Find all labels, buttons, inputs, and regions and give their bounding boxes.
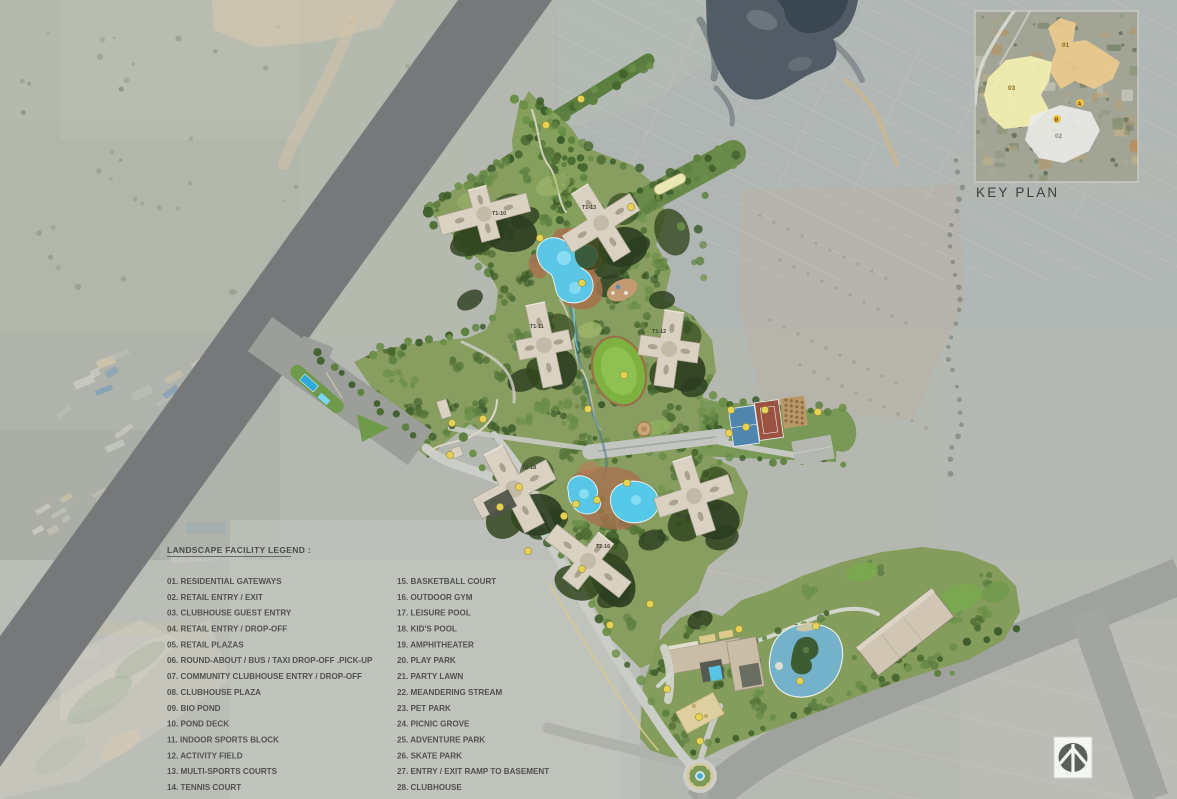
svg-text:22. MEANDERING STREAM: 22. MEANDERING STREAM [397,688,502,697]
svg-text:T1-12: T1-12 [652,329,666,335]
svg-text:LANDSCAPE FACILITY LEGEND :: LANDSCAPE FACILITY LEGEND : [167,545,311,555]
svg-text:15. BASKETBALL COURT: 15. BASKETBALL COURT [397,577,496,586]
svg-text:10. POND DECK: 10. POND DECK [167,720,229,729]
svg-text:23. PET PARK: 23. PET PARK [397,704,451,713]
svg-text:04. RETAIL ENTRY / DROP-OFF: 04. RETAIL ENTRY / DROP-OFF [167,625,287,634]
svg-text:25. ADVENTURE PARK: 25. ADVENTURE PARK [397,736,485,745]
svg-text:20. PLAY PARK: 20. PLAY PARK [397,656,456,665]
svg-text:17. LEISURE POOL: 17. LEISURE POOL [397,609,471,618]
svg-text:28. CLUBHOUSE: 28. CLUBHOUSE [397,783,462,792]
svg-text:A: A [1078,102,1082,108]
svg-text:09. BIO POND: 09. BIO POND [167,704,221,713]
svg-text:03: 03 [1008,85,1016,92]
svg-text:01: 01 [1062,42,1070,49]
svg-text:T2-18: T2-18 [522,465,536,471]
svg-text:11. INDOOR SPORTS BLOCK: 11. INDOOR SPORTS BLOCK [167,736,279,745]
svg-text:19. AMPHITHEATER: 19. AMPHITHEATER [397,640,474,649]
svg-text:02. RETAIL ENTRY / EXIT: 02. RETAIL ENTRY / EXIT [167,593,263,602]
svg-text:T2-16: T2-16 [676,514,690,520]
svg-text:14. TENNIS COURT: 14. TENNIS COURT [167,783,241,792]
svg-text:21. PARTY LAWN: 21. PARTY LAWN [397,672,463,681]
svg-text:26. SKATE PARK: 26. SKATE PARK [397,751,462,760]
svg-text:13. MULTI-SPORTS COURTS: 13. MULTI-SPORTS COURTS [167,767,278,776]
svg-text:KEY PLAN: KEY PLAN [976,185,1059,200]
svg-text:T2-16: T2-16 [596,544,610,550]
svg-text:01. RESIDENTIAL GATEWAYS: 01. RESIDENTIAL GATEWAYS [167,577,282,586]
svg-text:16. OUTDOOR GYM: 16. OUTDOOR GYM [397,593,473,602]
svg-text:06. ROUND-ABOUT / BUS / TAXI D: 06. ROUND-ABOUT / BUS / TAXI DROP-OFF .P… [167,656,373,665]
svg-text:08. CLUBHOUSE PLAZA: 08. CLUBHOUSE PLAZA [167,688,261,697]
svg-text:03. CLUBHOUSE GUEST ENTRY: 03. CLUBHOUSE GUEST ENTRY [167,609,292,618]
svg-text:07. COMMUNITY CLUBHOUSE ENTRY: 07. COMMUNITY CLUBHOUSE ENTRY / DROP-OFF [167,672,362,681]
svg-text:T1-10: T1-10 [492,211,506,217]
svg-text:24. PICNIC GROVE: 24. PICNIC GROVE [397,720,470,729]
svg-text:12. ACTIVITY FIELD: 12. ACTIVITY FIELD [167,751,243,760]
svg-text:02: 02 [1055,133,1063,140]
svg-text:05. RETAIL PLAZAS: 05. RETAIL PLAZAS [167,640,244,649]
svg-text:T1-13: T1-13 [582,205,596,211]
svg-text:B: B [1055,118,1059,124]
svg-text:27. ENTRY / EXIT RAMP TO BASEM: 27. ENTRY / EXIT RAMP TO BASEMENT [397,767,549,776]
svg-text:18. KID'S POOL: 18. KID'S POOL [397,625,457,634]
svg-text:T1-11: T1-11 [530,324,544,330]
